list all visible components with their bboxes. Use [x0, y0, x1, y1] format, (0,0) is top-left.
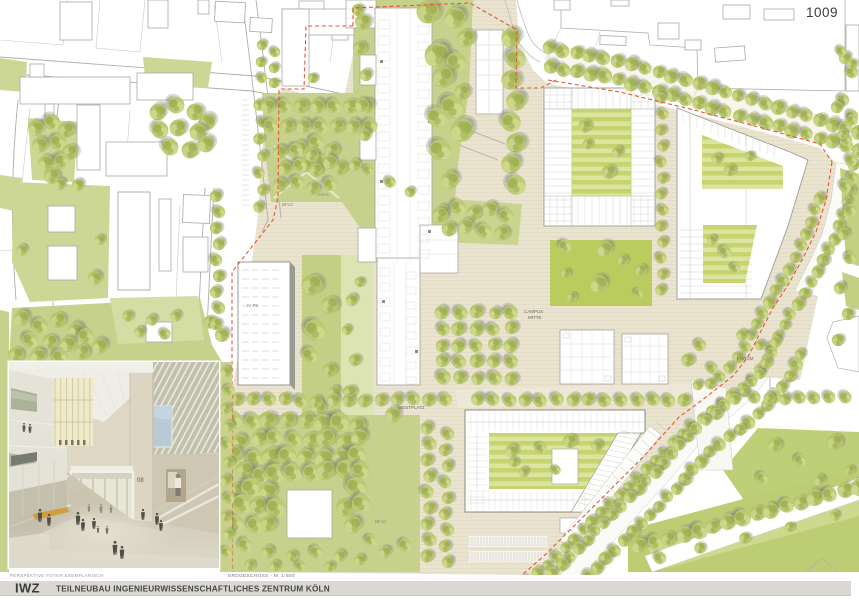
svg-text:IWZ: IWZ: [15, 581, 40, 596]
svg-text:CAMPUS: CAMPUS: [524, 309, 543, 314]
svg-text:ERDGESCHOSS - M. 1:500: ERDGESCHOSS - M. 1:500: [228, 573, 295, 579]
svg-text:BF10: BF10: [375, 519, 386, 524]
svg-text:MITTE: MITTE: [528, 315, 542, 320]
svg-text:PERSPEKTIVE FOYER EXEMPLARISCH: PERSPEKTIVE FOYER EXEMPLARISCH: [10, 573, 104, 578]
svg-text:WESTPLATZ: WESTPLATZ: [398, 405, 425, 410]
svg-text:IV PK: IV PK: [247, 303, 259, 308]
svg-text:BF12: BF12: [282, 202, 293, 207]
svg-text:ERD6: ERD6: [318, 192, 329, 197]
svg-text:TEILNEUBAU INGENIEURWISSENSCHA: TEILNEUBAU INGENIEURWISSENSCHAFTLICHES Z…: [56, 584, 330, 594]
svg-text:1009: 1009: [806, 5, 838, 20]
svg-text:FORUM: FORUM: [737, 356, 754, 361]
